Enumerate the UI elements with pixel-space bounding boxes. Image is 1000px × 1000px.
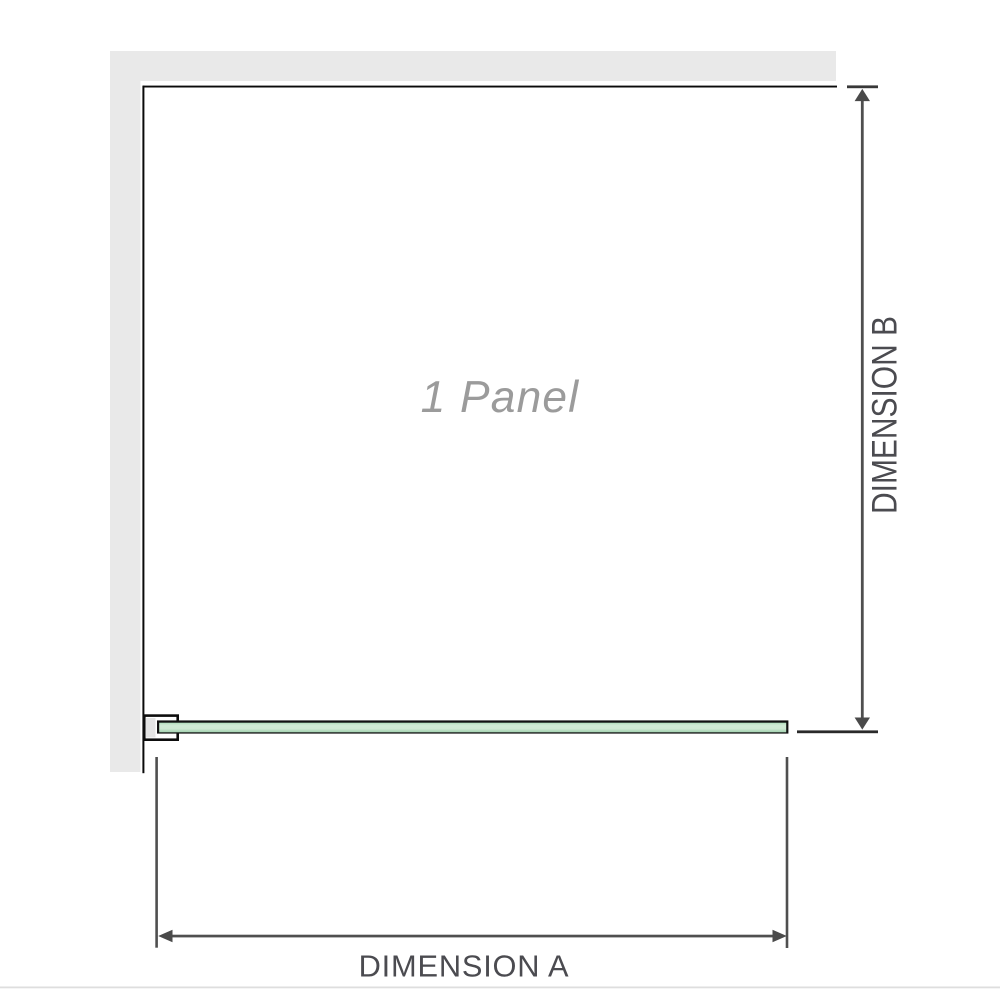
svg-text:1 Panel: 1 Panel bbox=[421, 373, 580, 422]
svg-text:DIMENSION B: DIMENSION B bbox=[865, 316, 904, 514]
svg-text:DIMENSION A: DIMENSION A bbox=[359, 948, 570, 983]
